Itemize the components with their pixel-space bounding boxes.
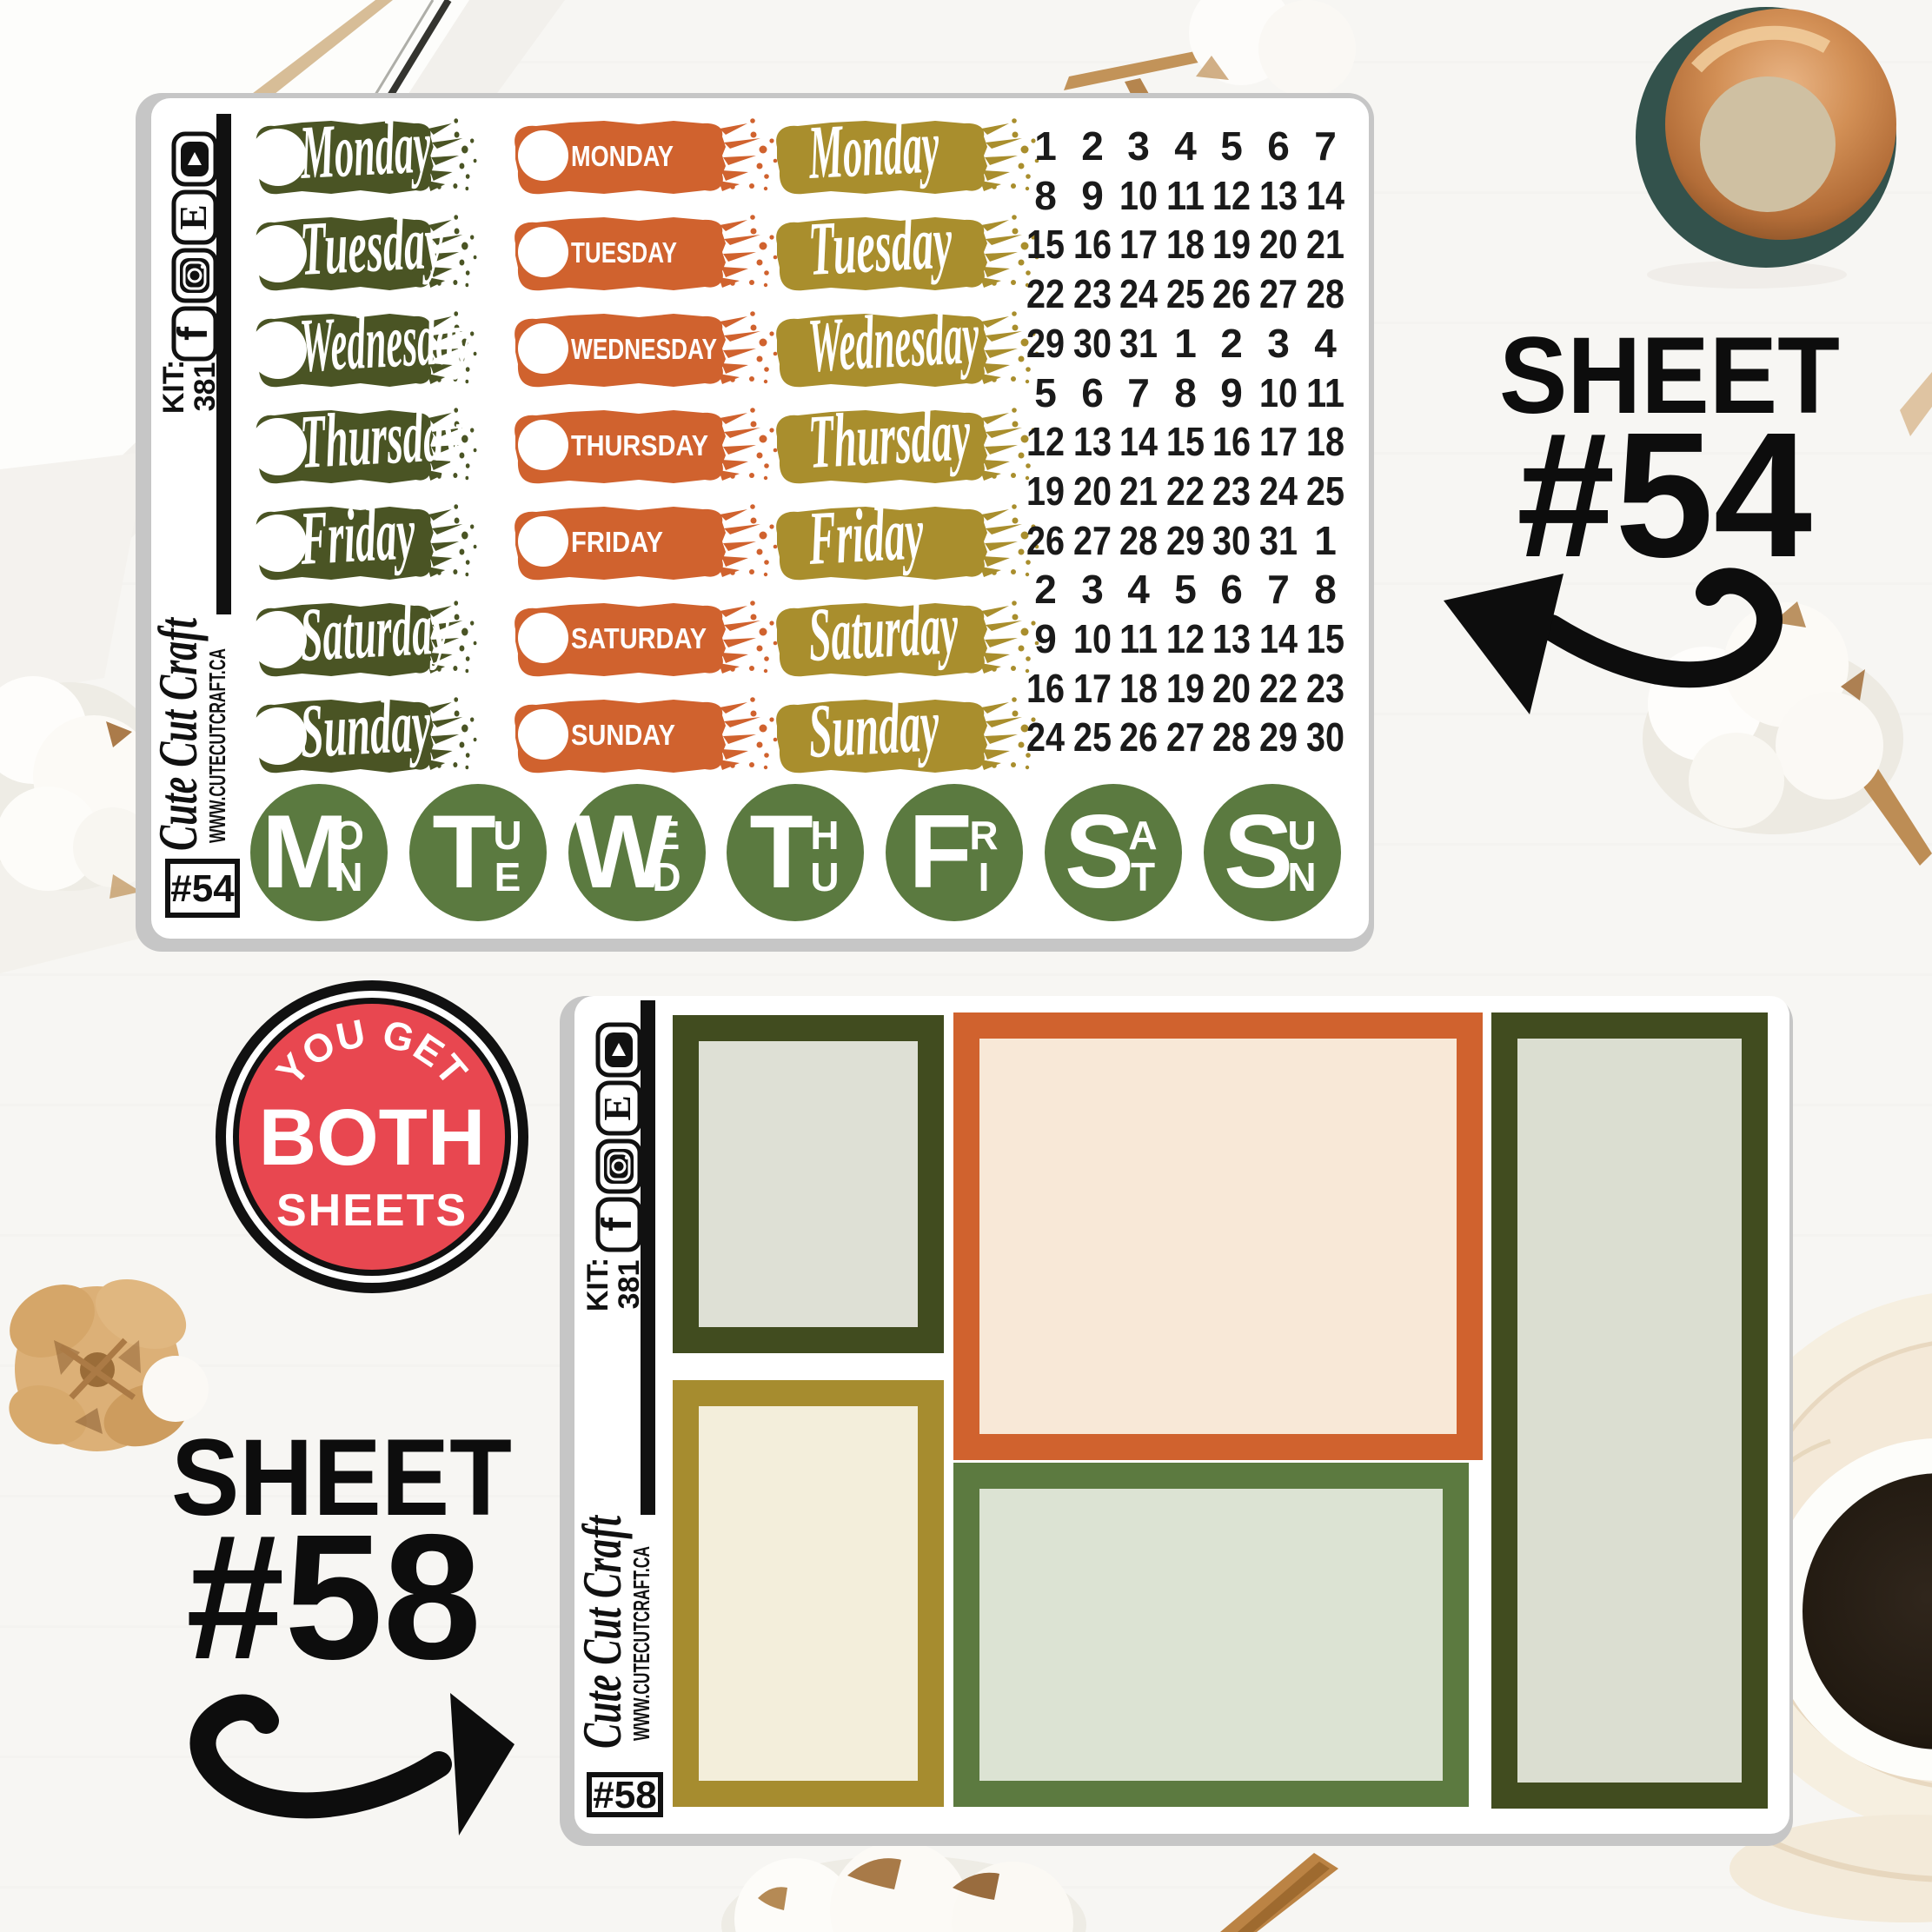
svg-text:28: 28 [1119,518,1158,563]
svg-text:3: 3 [1081,567,1104,612]
svg-text:30: 30 [1073,321,1112,366]
svg-text:Friday: Friday [297,491,417,581]
svg-text:Tuesday: Tuesday [298,200,446,292]
svg-text:SUNDAY: SUNDAY [571,719,675,751]
svg-text:24: 24 [1259,468,1298,514]
svg-text:26: 26 [1026,518,1065,563]
svg-text:24: 24 [1026,714,1065,760]
svg-text:4: 4 [1174,123,1197,169]
svg-text:20: 20 [1212,666,1251,711]
svg-text:13: 13 [1212,616,1251,661]
svg-text:381: 381 [189,362,222,412]
svg-text:29: 29 [1026,321,1065,366]
svg-text:17: 17 [1073,666,1112,711]
svg-text:9: 9 [1034,616,1057,661]
svg-text:f: f [594,1217,641,1232]
svg-text:#54: #54 [1517,395,1812,594]
svg-text:1: 1 [1174,321,1197,366]
svg-text:E: E [596,1095,639,1120]
svg-text:16: 16 [1026,666,1065,711]
svg-text:I: I [979,854,990,900]
svg-text:10: 10 [1073,616,1112,661]
svg-text:6: 6 [1220,567,1243,612]
svg-text:8: 8 [1034,173,1057,218]
svg-text:2: 2 [1034,567,1057,612]
svg-text:KIT:: KIT: [581,1258,614,1311]
svg-text:SHEETS: SHEETS [276,1185,468,1236]
svg-text:19: 19 [1212,222,1251,267]
svg-text:O: O [333,813,364,858]
svg-text:E: E [654,813,681,858]
svg-text:E: E [172,204,215,229]
svg-text:3: 3 [1127,123,1150,169]
svg-text:4: 4 [1314,321,1337,366]
svg-text:f: f [170,326,216,341]
svg-text:15: 15 [1166,419,1205,464]
svg-text:TUESDAY: TUESDAY [571,236,677,269]
svg-text:THURSDAY: THURSDAY [571,429,708,461]
svg-text:1: 1 [1034,123,1057,169]
svg-text:A: A [1128,813,1157,858]
svg-text:9: 9 [1220,370,1243,415]
svg-text:S: S [1224,793,1293,910]
svg-text:Saturday: Saturday [807,586,960,678]
svg-text:27: 27 [1166,714,1205,760]
svg-text:19: 19 [1026,468,1065,514]
svg-text:Sunday: Sunday [807,683,941,774]
svg-text:Sunday: Sunday [298,683,433,774]
svg-text:12: 12 [1026,419,1065,464]
svg-text:7: 7 [1314,123,1337,169]
svg-text:21: 21 [1306,222,1344,267]
svg-text:6: 6 [1267,123,1290,169]
svg-text:10: 10 [1119,173,1158,218]
svg-text:4: 4 [1127,567,1150,612]
svg-text:16: 16 [1073,222,1112,267]
svg-text:H: H [810,813,839,858]
svg-text:25: 25 [1166,271,1205,316]
svg-text:5: 5 [1034,370,1057,415]
svg-text:30: 30 [1306,714,1344,760]
svg-text:8: 8 [1174,370,1197,415]
svg-text:T: T [432,793,495,910]
svg-text:R: R [969,813,998,858]
svg-text:23: 23 [1073,271,1112,316]
svg-text:5: 5 [1174,567,1197,612]
svg-text:KIT:: KIT: [157,360,190,414]
svg-text:Wednesday: Wednesday [807,295,981,388]
svg-text:U: U [810,854,839,900]
svg-text:18: 18 [1119,666,1158,711]
svg-text:Saturday: Saturday [298,586,452,678]
svg-text:26: 26 [1212,271,1251,316]
svg-text:20: 20 [1073,468,1112,514]
svg-text:18: 18 [1166,222,1205,267]
svg-text:3: 3 [1267,321,1290,366]
svg-text:Tuesday: Tuesday [807,200,954,292]
svg-text:29: 29 [1166,518,1205,563]
svg-text:20: 20 [1259,222,1298,267]
svg-text:#58: #58 [593,1774,656,1816]
svg-text:WWW.CUTECUTCRAFT.CA: WWW.CUTECUTCRAFT.CA [628,1546,654,1741]
svg-text:SATURDAY: SATURDAY [571,622,707,654]
svg-text:E: E [495,854,521,900]
svg-text:31: 31 [1259,518,1298,563]
svg-text:12: 12 [1166,616,1205,661]
svg-text:Cute Cut Craft: Cute Cut Craft [147,616,209,851]
svg-text:15: 15 [1306,616,1344,661]
svg-text:10: 10 [1259,370,1298,415]
svg-text:Wednesday: Wednesday [298,295,473,388]
svg-text:15: 15 [1026,222,1065,267]
svg-text:2: 2 [1081,123,1104,169]
svg-text:11: 11 [1166,173,1205,218]
svg-text:8: 8 [1314,567,1337,612]
svg-text:28: 28 [1306,271,1344,316]
svg-text:U: U [493,813,521,858]
svg-text:Monday: Monday [297,104,433,196]
svg-text:U: U [1287,813,1316,858]
svg-text:17: 17 [1259,419,1298,464]
svg-text:WEDNESDAY: WEDNESDAY [571,333,717,365]
svg-text:Thursday: Thursday [298,392,464,485]
svg-text:Monday: Monday [806,104,941,196]
svg-text:N: N [334,854,362,900]
svg-text:27: 27 [1073,518,1112,563]
svg-text:N: N [1287,854,1316,900]
svg-text:F: F [908,793,972,910]
svg-text:11: 11 [1119,616,1158,661]
svg-text:FRIDAY: FRIDAY [571,526,663,558]
svg-text:11: 11 [1306,370,1344,415]
svg-text:26: 26 [1119,714,1158,760]
svg-text:31: 31 [1119,321,1158,366]
svg-text:Friday: Friday [806,491,926,581]
svg-text:19: 19 [1166,666,1205,711]
svg-text:30: 30 [1212,518,1251,563]
svg-text:MONDAY: MONDAY [571,140,674,172]
svg-text:25: 25 [1073,714,1112,760]
svg-text:22: 22 [1166,468,1205,514]
svg-text:17: 17 [1119,222,1158,267]
svg-text:D: D [652,854,681,900]
svg-text:14: 14 [1259,616,1298,661]
svg-text:7: 7 [1127,370,1150,415]
svg-text:381: 381 [613,1260,646,1310]
svg-text:27: 27 [1259,271,1298,316]
svg-text:14: 14 [1306,173,1344,218]
svg-text:21: 21 [1119,468,1158,514]
svg-text:1: 1 [1314,518,1337,563]
svg-text:16: 16 [1212,419,1251,464]
svg-text:S: S [1065,793,1134,910]
svg-text:28: 28 [1212,714,1251,760]
svg-text:24: 24 [1119,271,1158,316]
svg-text:Cute Cut Craft: Cute Cut Craft [571,1514,633,1749]
svg-text:5: 5 [1220,123,1243,169]
svg-text:WWW.CUTECUTCRAFT.CA: WWW.CUTECUTCRAFT.CA [204,648,230,843]
svg-text:9: 9 [1081,173,1104,218]
svg-text:6: 6 [1081,370,1104,415]
svg-text:Thursday: Thursday [807,392,973,485]
svg-text:23: 23 [1212,468,1251,514]
svg-text:22: 22 [1259,666,1298,711]
svg-text:29: 29 [1259,714,1298,760]
svg-text:T: T [1131,854,1155,900]
svg-text:T: T [749,793,813,910]
svg-text:2: 2 [1220,321,1243,366]
svg-text:#54: #54 [170,867,235,910]
svg-text:13: 13 [1259,173,1298,218]
svg-text:25: 25 [1306,468,1344,514]
svg-text:18: 18 [1306,419,1344,464]
svg-text:23: 23 [1306,666,1344,711]
svg-text:22: 22 [1026,271,1065,316]
svg-text:#58: #58 [186,1497,481,1696]
svg-text:BOTH: BOTH [259,1093,486,1182]
svg-text:13: 13 [1073,419,1112,464]
svg-text:14: 14 [1119,419,1158,464]
svg-text:12: 12 [1212,173,1251,218]
svg-text:7: 7 [1267,567,1290,612]
